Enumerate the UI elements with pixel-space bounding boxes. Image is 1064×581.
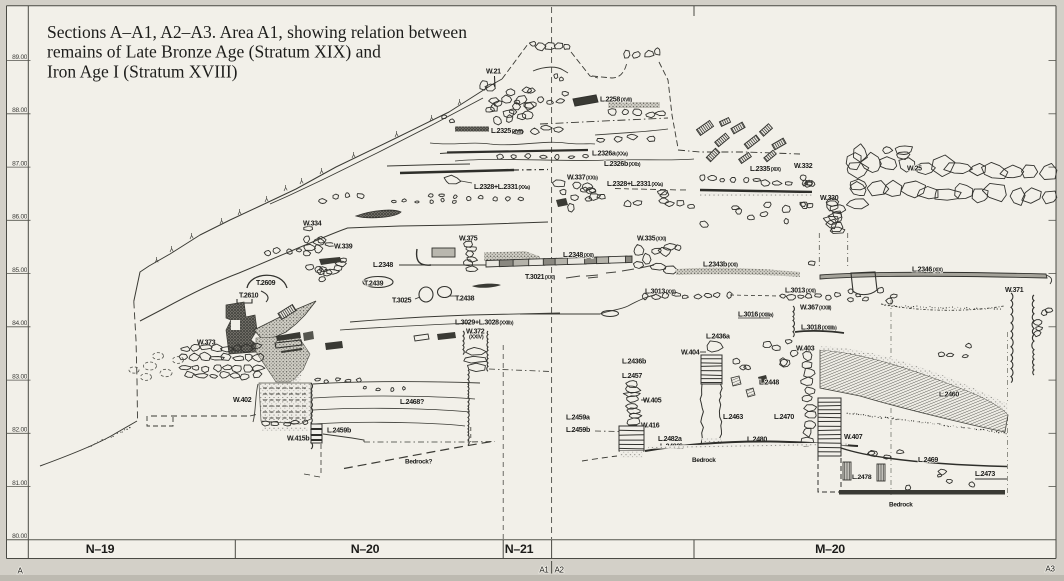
svg-text:T.2610: T.2610 <box>239 293 259 300</box>
svg-text:L.3013 (XXI): L.3013 (XXI) <box>645 289 676 296</box>
svg-text:A1: A1 <box>539 566 549 575</box>
svg-text:L.2436a: L.2436a <box>706 334 730 341</box>
svg-text:L.2348 (XXI): L.2348 (XXI) <box>563 252 594 259</box>
svg-text:L.2326a (XXa): L.2326a (XXa) <box>592 151 628 158</box>
svg-text:87.00: 87.00 <box>12 160 28 167</box>
svg-text:W.25: W.25 <box>907 165 922 172</box>
svg-text:A3: A3 <box>1045 565 1055 574</box>
svg-text:L.2258 (XVII): L.2258 (XVII) <box>600 97 632 104</box>
svg-text:Bedrock: Bedrock <box>889 502 913 509</box>
svg-text:T.3021 (XXI): T.3021 (XXI) <box>525 274 555 281</box>
svg-text:T.2438: T.2438 <box>455 296 475 303</box>
svg-text:W.334: W.334 <box>303 221 322 228</box>
svg-text:W.415b: W.415b <box>287 436 309 443</box>
svg-text:N–20: N–20 <box>351 542 380 556</box>
svg-text:L.2326b (XXb): L.2326b (XXb) <box>604 161 641 168</box>
svg-text:W.21: W.21 <box>486 69 501 76</box>
svg-text:L.2478: L.2478 <box>852 474 872 481</box>
svg-text:W.367 (XXIII): W.367 (XXIII) <box>800 304 832 311</box>
svg-text:L.2459b: L.2459b <box>327 428 351 435</box>
svg-text:L.2460: L.2460 <box>939 392 959 399</box>
svg-text:W.339: W.339 <box>334 244 353 251</box>
svg-text:A2: A2 <box>555 566 565 575</box>
svg-text:84.00: 84.00 <box>12 320 28 327</box>
svg-text:L.2335 (XIX): L.2335 (XIX) <box>750 166 781 173</box>
svg-text:L.2473: L.2473 <box>975 471 995 478</box>
svg-text:W.371: W.371 <box>1005 287 1024 294</box>
svg-text:L.2328+L.2331 (XXa): L.2328+L.2331 (XXa) <box>474 184 530 191</box>
svg-text:82.00: 82.00 <box>12 427 28 434</box>
svg-text:W.402: W.402 <box>233 397 252 404</box>
svg-text:L.2348: L.2348 <box>373 262 393 269</box>
svg-text:W.337 (XXb): W.337 (XXb) <box>567 175 598 182</box>
svg-text:L.2436b: L.2436b <box>622 359 646 366</box>
svg-text:L.2463: L.2463 <box>723 414 743 421</box>
svg-text:W.332: W.332 <box>794 163 813 170</box>
svg-text:L.3016 (XXIIIa): L.3016 (XXIIIa) <box>738 311 774 318</box>
svg-text:remains of Late Bronze Age (St: remains of Late Bronze Age (Stratum XIX)… <box>47 42 381 62</box>
svg-text:86.00: 86.00 <box>12 214 28 221</box>
svg-text:N–19: N–19 <box>86 542 115 556</box>
svg-text:N–21: N–21 <box>505 542 534 556</box>
svg-text:W.404: W.404 <box>681 349 700 356</box>
svg-text:Iron Age I (Stratum XVIII): Iron Age I (Stratum XVIII) <box>47 61 238 81</box>
svg-text:T.2439: T.2439 <box>364 280 384 287</box>
svg-text:L.2482a: L.2482a <box>658 436 682 443</box>
svg-text:L.2343b (XXI): L.2343b (XXI) <box>703 261 738 268</box>
svg-text:Sections A–A1, A2–A3. Area A1,: Sections A–A1, A2–A3. Area A1, showing r… <box>47 22 467 42</box>
svg-text:W.405: W.405 <box>643 398 662 405</box>
svg-text:88.00: 88.00 <box>12 107 28 114</box>
svg-text:L.2346 (XIX): L.2346 (XIX) <box>912 266 943 273</box>
svg-text:L.2459b: L.2459b <box>566 427 590 434</box>
svg-text:L.2448: L.2448 <box>759 380 779 387</box>
svg-text:T.2609: T.2609 <box>256 280 276 287</box>
svg-text:80.00: 80.00 <box>12 533 28 540</box>
svg-text:L.2328+L.2331 (XXa): L.2328+L.2331 (XXa) <box>607 181 663 188</box>
svg-text:L.2469: L.2469 <box>918 457 938 464</box>
svg-text:L.2470: L.2470 <box>774 414 794 421</box>
svg-text:(XXIV): (XXIV) <box>469 334 484 340</box>
svg-text:W.407: W.407 <box>844 434 863 441</box>
svg-text:L.2457: L.2457 <box>622 373 642 380</box>
svg-text:Bedrock?: Bedrock? <box>405 459 432 466</box>
svg-text:M–20: M–20 <box>815 542 845 556</box>
svg-text:Bedrock: Bedrock <box>692 457 716 464</box>
svg-text:L.3013 (XXI): L.3013 (XXI) <box>785 287 816 294</box>
svg-text:L.2459a: L.2459a <box>566 414 590 421</box>
svg-text:L.2468?: L.2468? <box>400 399 424 406</box>
svg-text:85.00: 85.00 <box>12 267 28 274</box>
svg-text:83.00: 83.00 <box>12 373 28 380</box>
svg-text:89.00: 89.00 <box>12 54 28 61</box>
svg-text:81.00: 81.00 <box>12 480 28 487</box>
svg-text:T.3025: T.3025 <box>392 298 412 305</box>
svg-text:W.335 (XXI): W.335 (XXI) <box>637 236 667 243</box>
